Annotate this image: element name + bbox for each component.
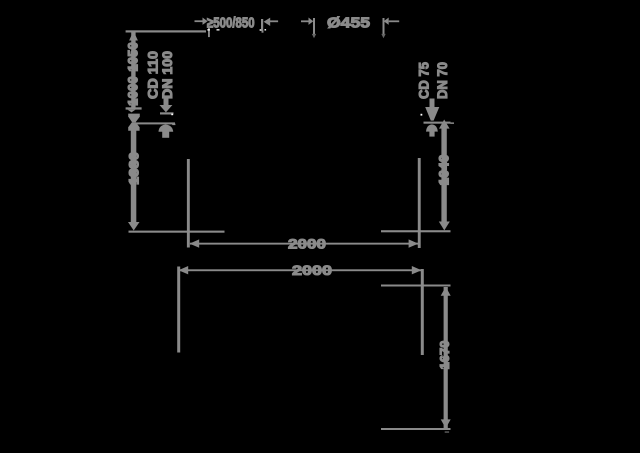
svg-text:DN 100: DN 100 — [160, 51, 175, 99]
svg-text:CD 110: CD 110 — [146, 51, 161, 99]
svg-text:1380: 1380 — [126, 152, 142, 185]
svg-text:1670: 1670 — [437, 341, 452, 370]
svg-text:1040: 1040 — [436, 154, 452, 185]
svg-text:DN 70: DN 70 — [435, 62, 450, 99]
svg-text:Ø455: Ø455 — [327, 14, 370, 31]
svg-text:1000-1050: 1000-1050 — [125, 42, 141, 106]
svg-text:2000: 2000 — [292, 262, 332, 278]
svg-text:≥500/850: ≥500/850 — [207, 15, 255, 31]
svg-text:2000: 2000 — [288, 235, 326, 251]
svg-text:CD 75: CD 75 — [417, 62, 432, 99]
